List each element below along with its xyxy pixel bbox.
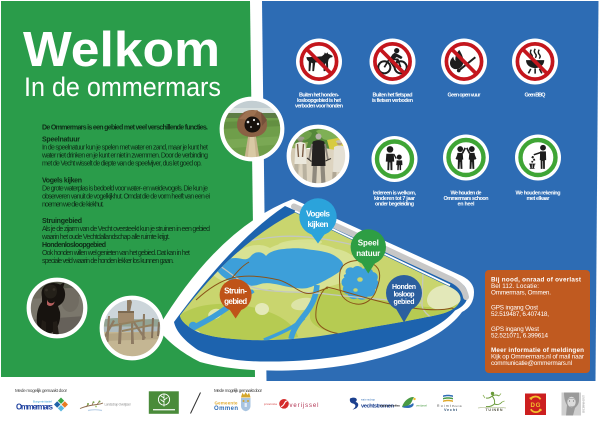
svg-text:waarin het oude Vechtdallandsc: waarin het oude Vechtdallandschap alle r… (41, 234, 170, 241)
svg-text:is fietsen verboden: is fietsen verboden (372, 98, 413, 104)
svg-text:onder begeleiding: onder begeleiding (375, 202, 414, 208)
svg-text:Vogels kijken: Vogels kijken (42, 178, 82, 185)
svg-text:waterschap: waterschap (361, 399, 376, 402)
svg-text:Landschap Overijssel: Landschap Overijssel (105, 402, 131, 406)
svg-text:water niet drinken en je kunt: water niet drinken en je kunt er niet in… (41, 153, 208, 160)
svg-text:verijssel: verijssel (290, 403, 319, 409)
svg-text:Mede mogelijk gemaakt door: Mede mogelijk gemaakt door (15, 388, 67, 393)
svg-text:gebied: gebied (394, 299, 415, 306)
svg-text:Vogels: Vogels (306, 209, 330, 219)
svg-text:TUINEN: TUINEN (486, 408, 503, 412)
svg-text:Ommen: Ommen (214, 406, 238, 412)
svg-text:noemen we die de kiekhut.: noemen we die de kiekhut. (42, 202, 104, 209)
svg-text:communicatie@ommermars.nl: communicatie@ommermars.nl (491, 360, 572, 367)
svg-text:kijken: kijken (308, 219, 329, 229)
svg-text:Welkom: Welkom (23, 22, 220, 77)
svg-text:In de speelnatuur kun je spele: In de speelnatuur kun je spelen met wate… (42, 145, 208, 152)
svg-text:Honden: Honden (392, 284, 416, 291)
svg-text:verboden voor honden: verboden voor honden (295, 104, 343, 110)
svg-text:natuur en milieu: natuur en milieu (380, 403, 400, 407)
svg-text:De grote waterplas is bedoeld: De grote waterplas is bedoeld voor water… (42, 186, 208, 193)
svg-text:natuur: natuur (356, 249, 380, 258)
svg-text:Struin-: Struin- (224, 287, 247, 296)
svg-text:gebied: gebied (224, 297, 247, 306)
svg-text:ERIC BRINKHORST: ERIC BRINKHORST (582, 395, 586, 413)
svg-text:Hondenlosloopgebied: Hondenlosloopgebied (42, 242, 106, 249)
svg-text:Als je de zijarm van de Vecht: Als je de zijarm van de Vecht oversteekt… (42, 226, 210, 233)
svg-text:Speel: Speel (358, 239, 379, 248)
svg-text:provincie: provincie (264, 402, 277, 406)
svg-text:Ommermars, Ommen.: Ommermars, Ommen. (491, 290, 551, 297)
svg-text:Geen open vuur: Geen open vuur (448, 93, 482, 99)
svg-text:verijssel: verijssel (416, 403, 427, 407)
svg-text:DG: DG (531, 402, 541, 409)
svg-text:observeren vanuit de vogelkijk: observeren vanuit de vogelkijkhut. Omdat… (42, 194, 210, 201)
svg-text:voor de: voor de (454, 404, 463, 408)
svg-text:met de Vecht wisselt de diepte: met de Vecht wisselt de diepte van de sp… (42, 161, 202, 168)
svg-text:Speelnatuur: Speelnatuur (42, 137, 80, 144)
svg-text:52.521071, 6.399614: 52.521071, 6.399614 (491, 333, 548, 340)
svg-text:speciale veld waarin de honden: speciale veld waarin de honden lekker lo… (42, 258, 174, 265)
svg-text:Gemeente: Gemeente (215, 401, 239, 406)
svg-text:52.519487, 6.407418,: 52.519487, 6.407418, (491, 311, 549, 318)
svg-text:losloop: losloop (394, 292, 415, 299)
svg-text:Struingebied: Struingebied (42, 218, 82, 225)
svg-text:Mede mogelijk gemaakt door: Mede mogelijk gemaakt door (214, 388, 262, 393)
svg-text:en heel: en heel (458, 202, 476, 208)
svg-text:In de ommermars: In de ommermars (24, 72, 221, 102)
svg-text:met elkaar: met elkaar (527, 196, 551, 202)
svg-text:Geen BBQ: Geen BBQ (525, 93, 546, 99)
svg-text:De Ommermars is een gebied met: De Ommermars is een gebied met veel vers… (42, 125, 208, 132)
svg-text:Ook honden willen wel genieten: Ook honden willen wel genieten van het g… (42, 250, 190, 257)
svg-text:Ommermars: Ommermars (16, 403, 54, 412)
svg-text:Vecht: Vecht (444, 408, 458, 412)
